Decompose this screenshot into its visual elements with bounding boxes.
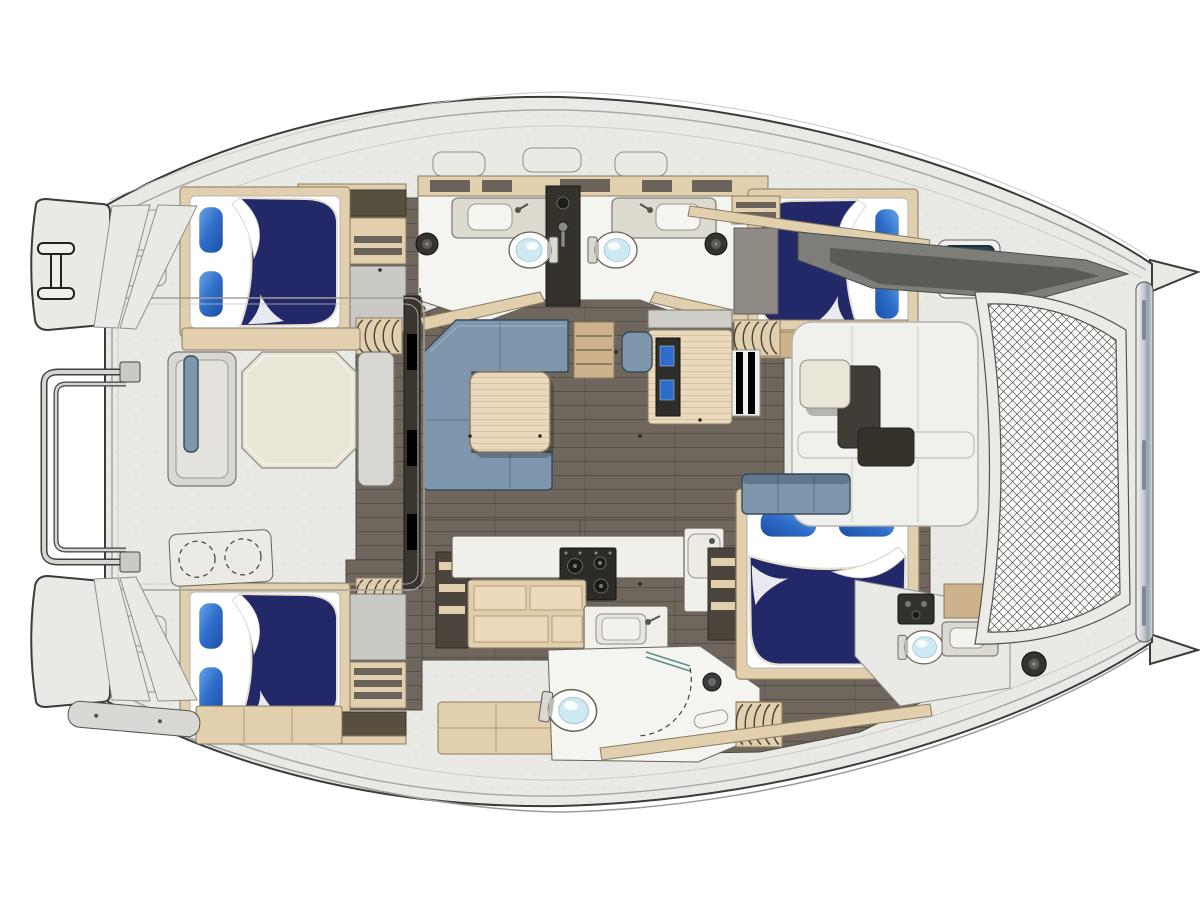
vanity-left	[452, 198, 556, 238]
crossbeam-fitting	[1142, 586, 1146, 626]
deck-hatch	[523, 148, 581, 172]
port-aft-cabin	[180, 184, 406, 337]
deck-winch	[1022, 652, 1046, 676]
deck-interior	[100, 90, 1160, 810]
instrument-screen	[660, 346, 674, 366]
stb-aft-cabin	[180, 583, 406, 744]
galley-sink	[584, 606, 668, 652]
stairs-port-aft	[356, 318, 402, 354]
davit-mount	[120, 552, 140, 572]
toilet-stb-fwd	[898, 631, 943, 664]
crossbeam-fitting	[1142, 440, 1146, 490]
davit-mount	[120, 362, 140, 382]
instrument-screen	[660, 380, 674, 400]
bow-tips	[1150, 260, 1198, 664]
cockpit-console	[169, 529, 274, 586]
trampoline-net	[988, 304, 1120, 632]
helm-cushion	[184, 356, 198, 452]
fwd-cockpit-bench	[742, 474, 850, 514]
galley-shelf-right	[708, 548, 738, 640]
under-bed-drawers	[196, 706, 342, 744]
deck-hatch	[433, 152, 485, 176]
wardrobe-port-aft	[350, 218, 406, 332]
salon-table	[470, 372, 550, 452]
yacht-floorplan: Catamaran yacht interior deck plan, top …	[0, 0, 1200, 900]
toilet-port-left	[509, 232, 558, 268]
toilet-port-right	[588, 232, 637, 268]
crossbeam	[1136, 282, 1153, 642]
bed-port-aft	[180, 187, 350, 337]
sliding-door	[404, 296, 420, 588]
deck-plate	[705, 233, 727, 255]
crossbeam-fitting	[1142, 300, 1146, 340]
cockpit-bench-right	[358, 352, 394, 486]
port-bow-tip	[1150, 260, 1198, 292]
wardrobe-stb-aft	[350, 594, 406, 708]
shower-drain	[703, 673, 721, 691]
deck-hatch	[615, 152, 667, 176]
galley-drawers	[468, 580, 586, 648]
deck-plate	[416, 233, 438, 255]
heads-cabinet-band	[418, 176, 768, 196]
stb-aft-daybed	[438, 702, 556, 754]
cockpit-bench-left	[168, 352, 236, 486]
trampoline	[975, 292, 1130, 644]
cockpit-bench-back	[182, 328, 360, 350]
floorplan-svg: Catamaran yacht interior deck plan, top …	[0, 0, 1200, 900]
port-companionway	[574, 322, 614, 378]
windlass-panel	[898, 594, 934, 624]
starboard-bow-tip	[1150, 634, 1198, 664]
cockpit-table	[242, 352, 356, 468]
salon-front-door	[732, 350, 760, 416]
fwd-cockpit-table	[800, 360, 850, 408]
basin	[468, 204, 512, 230]
nav-seat	[622, 332, 652, 372]
